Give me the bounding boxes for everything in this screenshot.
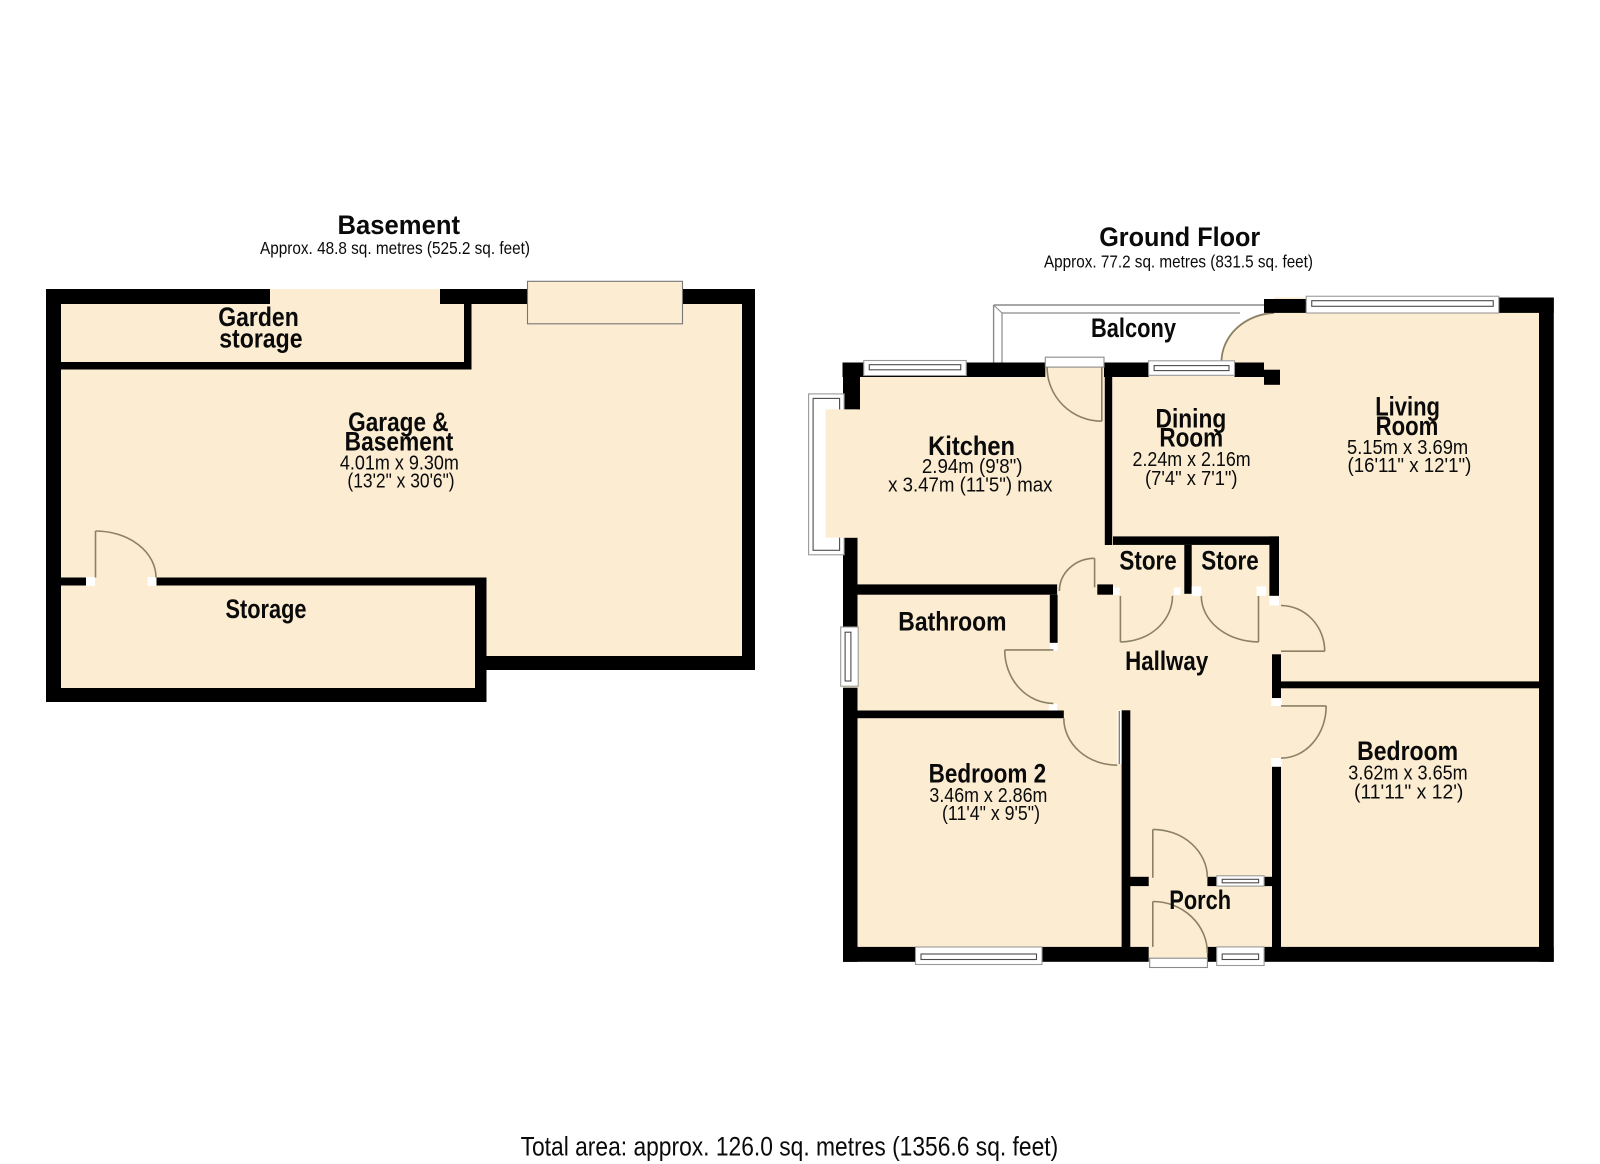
svg-text:Balcony: Balcony xyxy=(1091,313,1176,343)
svg-text:Total area: approx. 126.0 sq.: Total area: approx. 126.0 sq. metres (13… xyxy=(521,1132,1059,1162)
svg-text:Storage: Storage xyxy=(226,594,307,624)
svg-text:storage: storage xyxy=(219,324,302,354)
svg-text:Hallway: Hallway xyxy=(1125,646,1208,676)
svg-text:Approx. 77.2 sq. metres (831.5: Approx. 77.2 sq. metres (831.5 sq. feet) xyxy=(1044,252,1313,272)
svg-text:Store: Store xyxy=(1201,545,1258,575)
svg-text:Bathroom: Bathroom xyxy=(898,606,1006,636)
svg-text:(11'4" x 9'5"): (11'4" x 9'5") xyxy=(942,803,1040,825)
svg-text:Approx. 48.8 sq. metres (525.2: Approx. 48.8 sq. metres (525.2 sq. feet) xyxy=(260,238,530,258)
svg-text:Basement: Basement xyxy=(338,210,461,240)
svg-text:Porch: Porch xyxy=(1169,885,1231,915)
svg-text:Ground Floor: Ground Floor xyxy=(1099,222,1260,252)
svg-text:(7'4" x 7'1"): (7'4" x 7'1") xyxy=(1145,468,1238,490)
svg-text:x 3.47m (11'5") max: x 3.47m (11'5") max xyxy=(888,474,1052,496)
svg-text:(13'2" x 30'6"): (13'2" x 30'6") xyxy=(347,470,454,492)
svg-text:(16'11" x 12'1"): (16'11" x 12'1") xyxy=(1348,455,1472,477)
svg-text:Store: Store xyxy=(1119,545,1176,575)
svg-text:Room: Room xyxy=(1159,423,1223,453)
svg-text:(11'11" x 12'): (11'11" x 12') xyxy=(1354,782,1463,804)
svg-text:Bedroom 2: Bedroom 2 xyxy=(929,759,1047,789)
